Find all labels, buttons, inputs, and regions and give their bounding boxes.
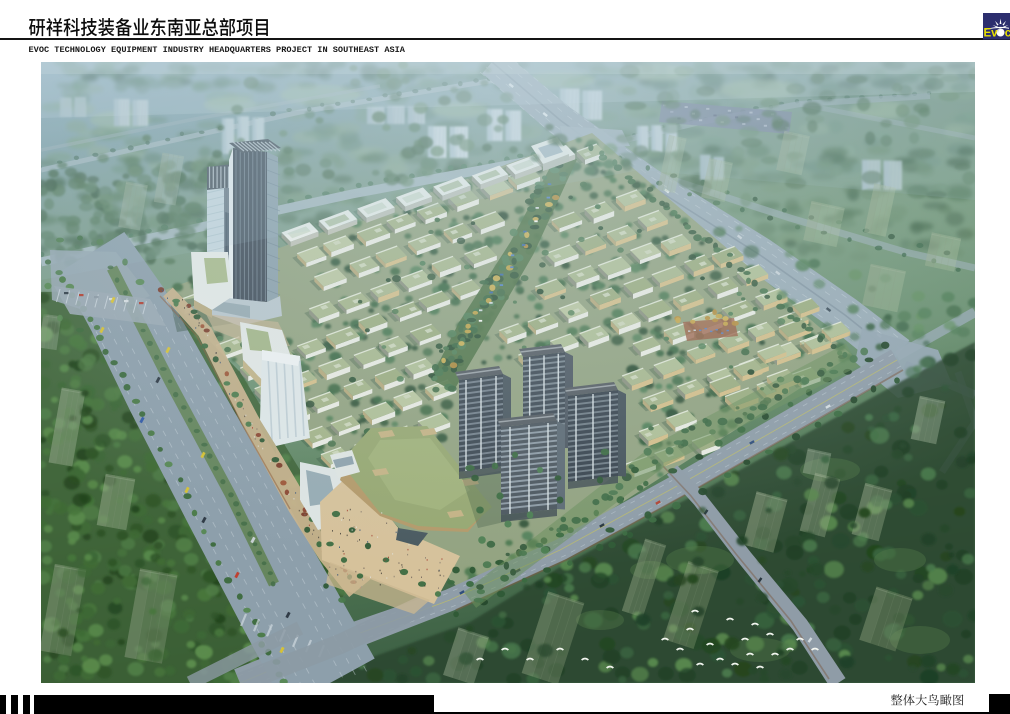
svg-text:Ev: Ev	[984, 28, 999, 40]
svg-text:c: c	[1005, 28, 1010, 40]
